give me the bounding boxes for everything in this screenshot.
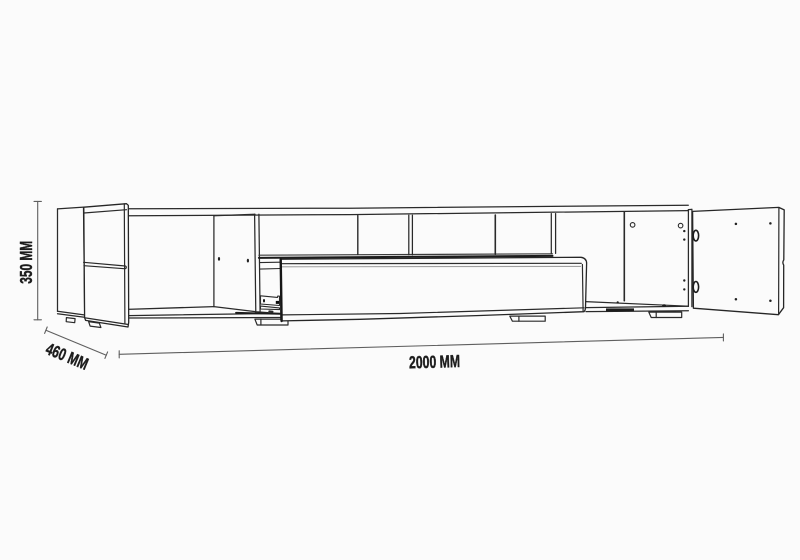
svg-text:350 MM: 350 MM	[17, 241, 37, 284]
svg-text:2000 MM: 2000 MM	[409, 352, 461, 373]
